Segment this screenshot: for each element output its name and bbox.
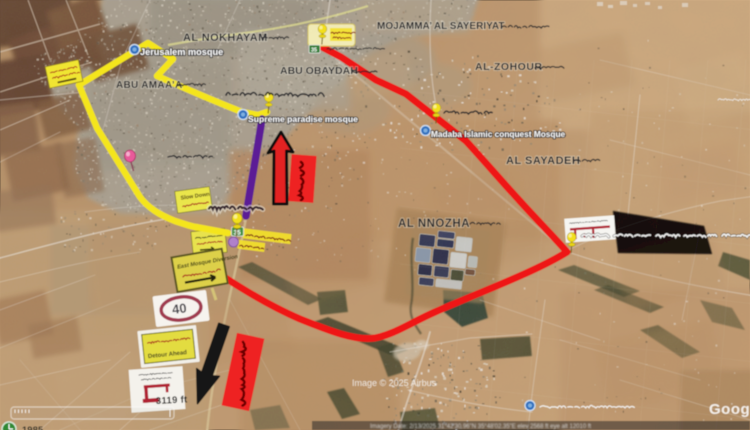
svg-text:AL NNOZHA: AL NNOZHA <box>398 218 470 230</box>
svg-text:ABU OBAYDAH: ABU OBAYDAH <box>280 65 358 77</box>
svg-text:Imagery Date: 2/13/2025 31°4: Imagery Date: 2/13/2025 31°42'30.96"N 35… <box>370 424 592 430</box>
svg-text:35: 35 <box>311 48 317 54</box>
svg-text:40: 40 <box>171 300 187 317</box>
svg-text:MOJAMMA’ AL SAYERIYAT: MOJAMMA’ AL SAYERIYAT <box>377 21 504 32</box>
svg-text:ABU AMAA’A: ABU AMAA’A <box>116 80 183 91</box>
svg-text:1985: 1985 <box>22 425 44 430</box>
svg-text:Jerusalem mosque: Jerusalem mosque <box>140 47 223 57</box>
svg-text:AL-ZOHOUR: AL-ZOHOUR <box>475 61 543 73</box>
svg-text:Google: Google <box>709 401 750 418</box>
svg-text:AL SAYADEH: AL SAYADEH <box>506 155 580 167</box>
svg-text:Image © 2025 Airbus: Image © 2025 Airbus <box>352 378 437 388</box>
svg-text:AL NOKHAYAM: AL NOKHAYAM <box>183 32 268 44</box>
svg-text:Supreme paradise mosque: Supreme paradise mosque <box>248 114 358 124</box>
svg-text:Madaba Islamic conquest Mosque: Madaba Islamic conquest Mosque <box>431 129 566 139</box>
svg-text:3119 ft: 3119 ft <box>156 394 189 407</box>
